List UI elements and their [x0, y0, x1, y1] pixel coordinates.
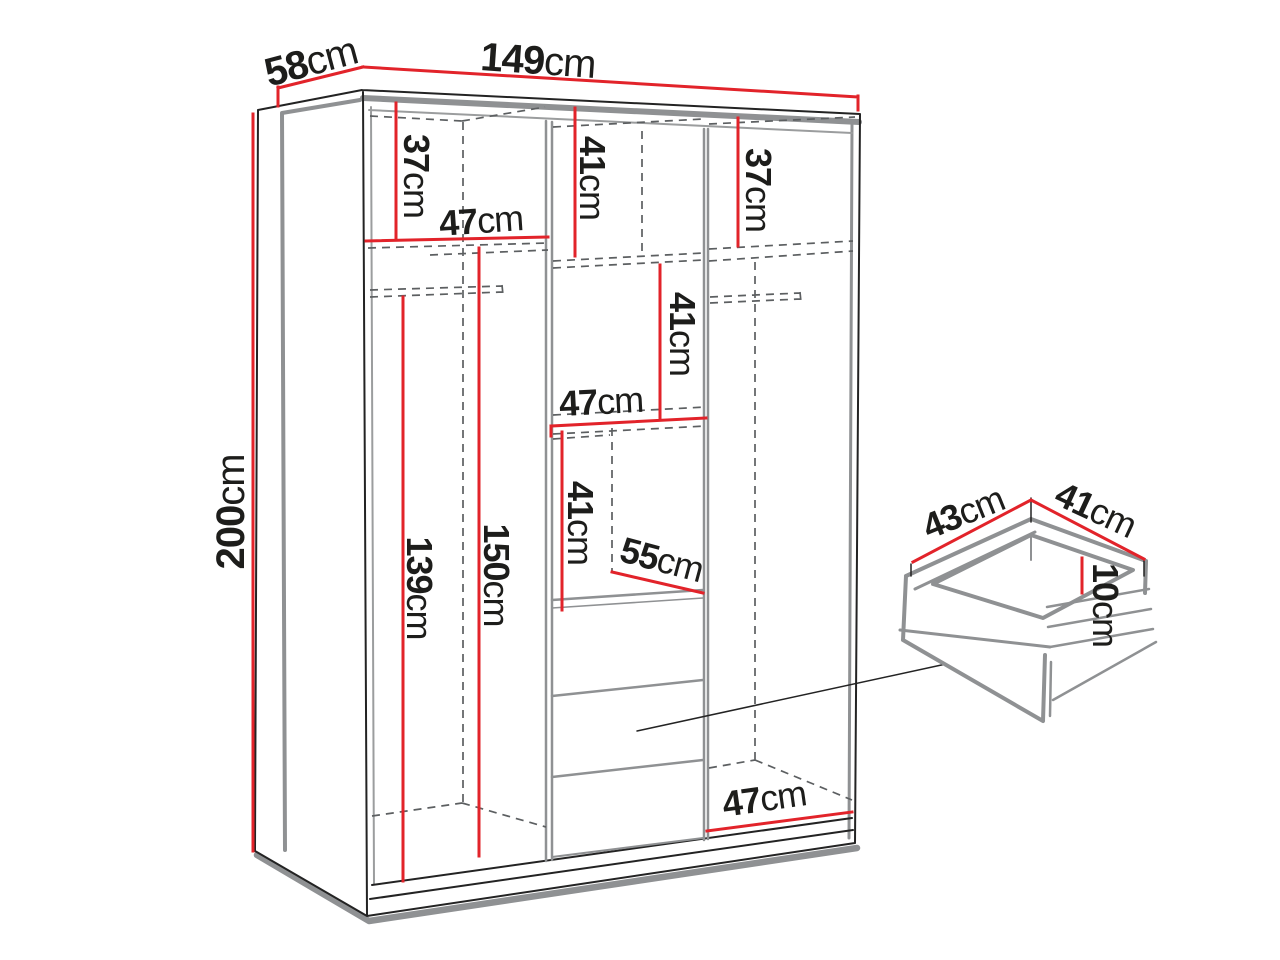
dim-unit: cm — [209, 454, 253, 505]
dim-unit: cm — [397, 172, 438, 218]
dim-value: 41 — [573, 136, 614, 175]
dim-unit: cm — [301, 29, 362, 85]
dim-left-top-shelf-height-label: 37cm — [397, 134, 438, 218]
dim-middle-top-shelf-height-label: 41cm — [573, 136, 614, 220]
dim-middle-section-width-label: 47cm — [558, 378, 644, 423]
dim-value: 200 — [209, 506, 253, 570]
dim-overall-height-label: 200cm — [209, 454, 253, 569]
wardrobe-dimension-diagram: 58cm 149cm 200cm 37cm 47cm 41cm 37cm 41c… — [0, 0, 1280, 960]
dim-unit: cm — [1086, 601, 1127, 647]
dim-value: 37 — [397, 134, 438, 172]
dim-unit: cm — [476, 197, 525, 241]
dim-unit: cm — [596, 378, 644, 421]
dim-unit: cm — [757, 772, 808, 819]
dim-value: 47 — [720, 778, 763, 824]
dim-value: 47 — [558, 381, 598, 424]
dim-drawer-height-label: 10cm — [1086, 563, 1127, 647]
dim-unit: cm — [477, 581, 518, 627]
dim-unit: cm — [543, 39, 597, 86]
side-panel-edge — [282, 100, 360, 850]
dim-left-hanging-height-label: 139cm — [400, 536, 441, 639]
dim-value: 47 — [438, 200, 479, 244]
dim-unit: cm — [400, 594, 441, 640]
dim-value: 10 — [1086, 563, 1127, 601]
dim-left-section-width-label: 47cm — [438, 197, 525, 244]
dim-unit: cm — [573, 174, 614, 220]
drawer-front-edges — [552, 590, 703, 857]
drawer-floor-edge — [900, 630, 1050, 647]
hidden-edges-right-section — [709, 117, 855, 800]
drawer-leader-line — [637, 664, 946, 731]
drawer-divider-edges — [552, 680, 703, 777]
dim-value: 139 — [400, 536, 441, 593]
dim-middle-upper-cubby-height-label: 41cm — [663, 292, 704, 376]
dim-value: 149 — [479, 35, 546, 83]
drawer-top-edge — [552, 590, 703, 600]
dim-unit: cm — [561, 519, 602, 565]
dim-middle-cubby-depth-label: 55cm — [616, 528, 708, 589]
right-inner-wall-edge — [849, 124, 852, 838]
dim-middle-lower-cubby-height-label: 41cm — [561, 481, 602, 565]
diagram-canvas: 58cm 149cm 200cm 37cm 47cm 41cm 37cm 41c… — [0, 0, 1280, 960]
dim-overall-width-label: 149cm — [479, 35, 597, 87]
dim-right-section-width-label: 47cm — [720, 772, 809, 824]
dim-left-interior-height-label: 150cm — [477, 523, 518, 626]
dim-unit: cm — [663, 330, 704, 376]
dim-value: 41 — [663, 292, 704, 331]
dim-value: 37 — [739, 148, 780, 186]
dim-value: 41 — [561, 481, 602, 520]
dim-value: 150 — [477, 523, 518, 580]
dim-unit: cm — [739, 186, 780, 232]
dim-overall-depth-label: 58cm — [260, 29, 362, 96]
dim-right-top-shelf-height-label: 37cm — [739, 148, 780, 232]
dimension-labels: 58cm 149cm 200cm 37cm 47cm 41cm 37cm 41c… — [209, 29, 1143, 825]
